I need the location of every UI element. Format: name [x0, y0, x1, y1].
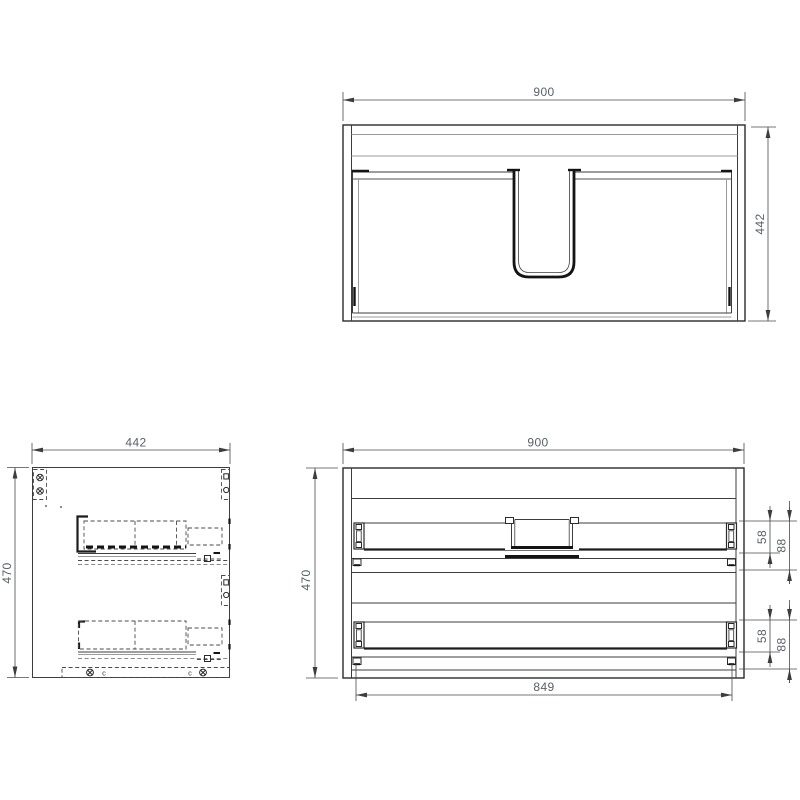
side-view-dim-height: 470	[0, 468, 29, 678]
lower-slide-height-label: 58	[755, 629, 769, 643]
drawer-slide-lower	[78, 620, 230, 662]
bottom-rail: c c	[62, 668, 230, 678]
side-panel-outline	[33, 468, 230, 678]
front-view-dim-upper-right: 58 88	[739, 501, 797, 584]
front-view: 900 470	[299, 436, 797, 702]
drawer-slide-upper	[78, 517, 230, 565]
slide-clip-upper-right	[728, 559, 736, 566]
upper-overall-height-label: 88	[775, 538, 789, 552]
pilot-hole-mark	[60, 506, 62, 508]
side-view: 442 470	[0, 436, 230, 678]
sink-plumbing-cutout	[507, 170, 581, 277]
screw-icon	[37, 488, 44, 495]
slide-clip-upper-left	[353, 559, 361, 566]
rail-label-right: c	[188, 669, 192, 678]
fitting-icon	[224, 474, 229, 479]
front-view-body	[343, 468, 744, 678]
lower-overall-height-label: 88	[775, 637, 789, 651]
pilot-hole-mark	[45, 505, 47, 507]
slide-clip-lower-left	[353, 658, 361, 665]
top-view-dim-width: 900	[343, 85, 745, 121]
mounting-bracket-top-right	[222, 470, 230, 500]
slide-block-upper-left	[354, 523, 364, 549]
top-width-label: 900	[533, 85, 554, 99]
front-width-label: 900	[527, 436, 548, 450]
side-width-label: 442	[125, 436, 146, 450]
dowel-icon	[224, 487, 229, 492]
mounting-bracket-middle-right	[222, 576, 230, 606]
front-view-dim-width: 900	[343, 436, 744, 465]
top-depth-label: 442	[753, 213, 767, 234]
slide-block-lower-right	[727, 622, 737, 648]
screw-icon	[37, 474, 44, 481]
vanity-cabinet-drawing: 900 442	[0, 0, 800, 800]
slide-clip-lower-right	[728, 658, 736, 665]
upper-slide-height-label: 58	[755, 530, 769, 544]
rail-label-left: c	[102, 669, 106, 678]
top-view-drawer-box	[352, 171, 732, 317]
front-view-dim-lower-right: 58 88	[739, 600, 797, 683]
technical-drawing-canvas: 900 442	[0, 0, 800, 800]
side-view-dim-width: 442	[32, 436, 230, 465]
slide-block-upper-right	[727, 523, 737, 549]
mounting-bracket-top-left	[34, 470, 47, 500]
dowel-icon	[224, 592, 229, 597]
front-height-label: 470	[299, 569, 313, 590]
screw-icon	[200, 669, 207, 676]
screw-icon	[87, 669, 94, 676]
top-view-body	[343, 125, 745, 321]
top-view-dim-depth: 442	[748, 127, 776, 321]
slide-span-label: 849	[533, 680, 554, 694]
slide-block-lower-left	[354, 622, 364, 648]
front-view-dim-height: 470	[299, 468, 338, 678]
side-height-label: 470	[0, 562, 14, 583]
top-view: 900 442	[343, 85, 776, 321]
fitting-icon	[224, 580, 229, 585]
